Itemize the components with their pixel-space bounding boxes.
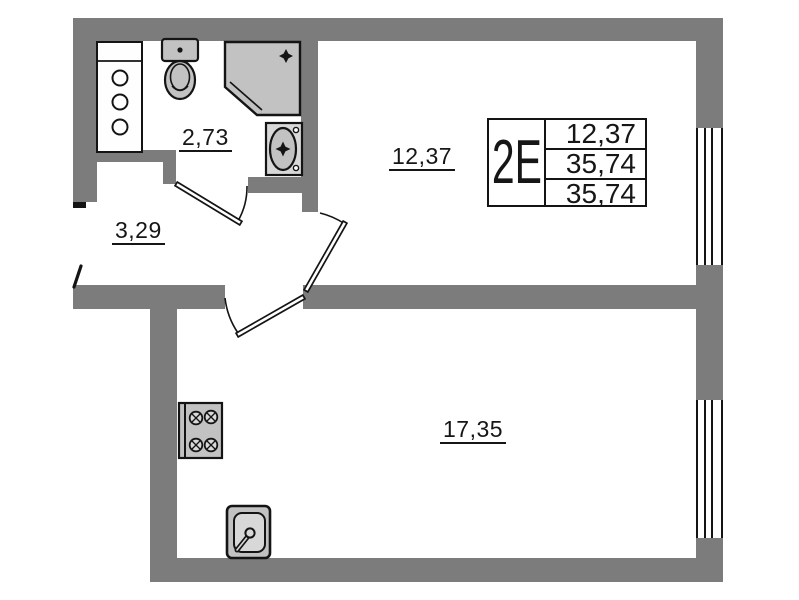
hallway-area-label: 3,29: [112, 218, 165, 245]
living-room-door-swing-icon: [225, 298, 302, 334]
unit-value-row: 12,37: [546, 120, 645, 148]
wall-living-left: [150, 309, 177, 582]
living-kitchen-area-label: 17,35: [440, 417, 506, 444]
burner-icon: [205, 439, 218, 452]
wall-top: [73, 18, 723, 41]
unit-info-box: 2E 12,37 35,74 35,74: [487, 118, 647, 207]
drain-icon: [279, 49, 293, 63]
window-pane-line: [704, 400, 706, 538]
window-lower-icon: [696, 400, 723, 538]
wall-left-end-cap: [73, 202, 86, 208]
bathroom-area-label: 2,73: [179, 125, 232, 152]
toilet-icon: [162, 39, 198, 99]
burner-icon: [190, 412, 203, 425]
wall-left-upper: [73, 18, 97, 202]
window-pane-line: [711, 128, 713, 265]
bedroom-door-swing-icon: [307, 213, 345, 289]
burner-icon: [190, 439, 203, 452]
wall-stub-bedroom-door: [302, 193, 318, 212]
wall-under-basin: [248, 177, 318, 193]
burner-icon: [205, 411, 218, 424]
kitchen-sink-icon: [227, 506, 270, 558]
wall-right-middle: [696, 265, 723, 400]
wall-middle-right: [303, 285, 723, 309]
entry-door-icon: [74, 266, 81, 287]
wall-right-lower: [696, 538, 723, 582]
wall-right-upper: [696, 41, 723, 128]
window-pane-line: [704, 128, 706, 265]
stove-icon: [179, 403, 222, 458]
wall-bathroom-right: [301, 41, 318, 177]
window-upper-icon: [696, 128, 723, 265]
unit-type-label: 2E: [491, 132, 541, 194]
unit-value-row: 35,74: [546, 178, 645, 208]
wall-bathroom-door-jamb: [163, 160, 176, 184]
unit-values-column: 12,37 35,74 35,74: [546, 120, 645, 205]
unit-type-cell: 2E: [489, 120, 546, 205]
faucet-icon: [237, 528, 255, 550]
cabinet-icon: [97, 42, 142, 152]
floor-plan: 2,73 3,29 12,37 17,35 2E 12,37 35,74 35,…: [0, 0, 799, 600]
unit-value-row: 35,74: [546, 148, 645, 178]
drain-icon: [276, 142, 291, 157]
wall-bottom: [150, 558, 723, 582]
wall-middle-left: [73, 285, 225, 309]
bathroom-door-swing-icon: [178, 185, 247, 222]
bedroom-area-label: 12,37: [389, 144, 455, 171]
shower-cabin-icon: [225, 42, 300, 115]
wash-basin-icon: [266, 123, 302, 175]
window-pane-line: [711, 400, 713, 538]
